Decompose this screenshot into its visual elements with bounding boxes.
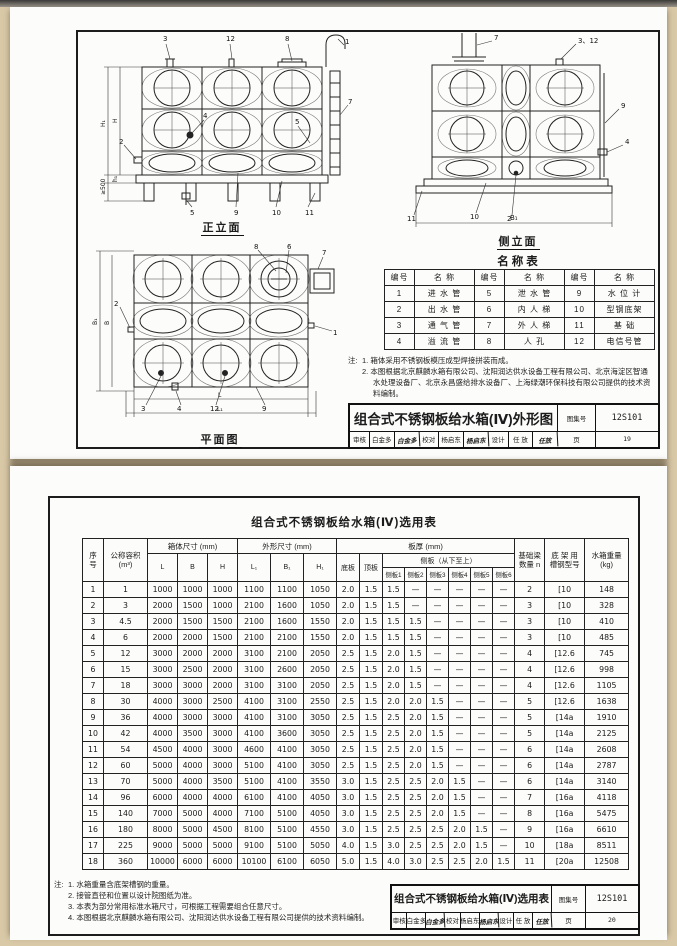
table-cell: 11 [83, 742, 104, 758]
table-cell: 3550 [304, 774, 337, 790]
table-cell: 6000 [208, 854, 238, 870]
table-cell: 1.5 [471, 838, 493, 854]
table-cell: 10000 [148, 854, 178, 870]
table-cell: 96 [104, 790, 148, 806]
table-cell: 2.0 [383, 678, 405, 694]
table-cell: 1100 [238, 582, 271, 598]
table-cell: 1105 [585, 678, 629, 694]
table-cell: 2.5 [405, 806, 427, 822]
callout-label: 7 [494, 34, 498, 42]
notes-label: 注: [348, 356, 362, 400]
col-header-channel: 底 架 用 槽钢型号 [545, 539, 585, 582]
table-cell: 1.5 [405, 646, 427, 662]
table-cell: 9 [565, 286, 595, 302]
table-cell: 1.5 [360, 774, 383, 790]
selection-table-row: 18360100006000600010100610060505.01.54.0… [83, 854, 629, 870]
table-cell: — [449, 678, 471, 694]
table-cell: — [493, 742, 515, 758]
table-cell: 2.5 [383, 742, 405, 758]
table-cell: 998 [585, 662, 629, 678]
title-block-row-signatures: 审核 白金多 白金多 校对 杨启东 杨启东 设计 任 放 任放 页 20 [392, 913, 638, 928]
table-cell: 2050 [304, 646, 337, 662]
table-cell: 3000 [178, 710, 208, 726]
table-cell: 4100 [271, 774, 304, 790]
table-cell: — [493, 838, 515, 854]
reviewer-signature: 白金多 [426, 912, 446, 928]
table-cell: — [405, 598, 427, 614]
table-cell: [10 [545, 598, 585, 614]
table-cell: [14a [545, 774, 585, 790]
table-cell: 5100 [271, 822, 304, 838]
table-cell: 2.5 [337, 694, 360, 710]
table-cell: 5 [475, 286, 505, 302]
table-cell: — [449, 694, 471, 710]
table-cell: 1050 [304, 582, 337, 598]
table-cell: 12 [83, 758, 104, 774]
table-cell: 1.5 [360, 598, 383, 614]
callout-label: 6 [287, 243, 292, 251]
col-header-side2: 侧板2 [405, 568, 427, 582]
sheet-title: 组合式不锈钢板给水箱(Ⅳ)外形图 [350, 405, 558, 431]
table-cell: 2050 [304, 662, 337, 678]
table-cell: 5100 [271, 838, 304, 854]
selection-table-row: 5123000200020003100210020502.51.52.01.5—… [83, 646, 629, 662]
table-cell: 1.5 [449, 774, 471, 790]
table-cell: 4050 [304, 806, 337, 822]
table-cell: — [471, 742, 493, 758]
table-cell: 2125 [585, 726, 629, 742]
table-cell: 3000 [208, 710, 238, 726]
table-cell: — [471, 662, 493, 678]
table-cell: 3140 [585, 774, 629, 790]
table-cell: 2608 [585, 742, 629, 758]
selection-table-row: 7183000300020003100310020502.51.52.01.5—… [83, 678, 629, 694]
table-cell: 4600 [238, 742, 271, 758]
col-header-side3: 侧板3 [427, 568, 449, 582]
table-cell: 6100 [271, 854, 304, 870]
table-cell: 4000 [178, 790, 208, 806]
col-header-volume: 公称容积 (m³) [104, 539, 148, 582]
table-cell: 6050 [304, 854, 337, 870]
dimension-label: L [218, 392, 222, 399]
table-cell: 2.0 [427, 790, 449, 806]
table-cell: — [493, 614, 515, 630]
table-cell: 360 [104, 854, 148, 870]
table-cell: 1.5 [360, 614, 383, 630]
table-cell: 1.5 [427, 742, 449, 758]
notes-list: 1. 水箱重量含底架槽钢的重量。2. 接管直径和位置以设计院图纸为准。3. 本表… [68, 880, 394, 924]
table-cell: — [493, 598, 515, 614]
table-cell: 3000 [178, 694, 208, 710]
table-cell: 2100 [238, 598, 271, 614]
dimension-label: B₁ [510, 214, 518, 222]
callout-label: 2 [119, 138, 123, 146]
table-cell: — [427, 614, 449, 630]
table-cell: 3.0 [337, 822, 360, 838]
table-cell: — [471, 598, 493, 614]
selection-table-body: 111000100010001100110010502.01.51.5—————… [83, 582, 629, 870]
table-cell: — [471, 678, 493, 694]
table-cell: 型钢底架 [595, 302, 655, 318]
callout-label: 7 [322, 249, 326, 257]
selection-table-title: 组合式不锈钢板给水箱(Ⅳ)选用表 [48, 514, 640, 530]
table-cell: 30 [104, 694, 148, 710]
table-cell: 2.5 [427, 838, 449, 854]
col-header: 编号 [385, 270, 415, 286]
table-cell: 1.5 [427, 710, 449, 726]
table-cell: — [471, 614, 493, 630]
selection-table-row: 34.52000150015002100160015502.01.51.51.5… [83, 614, 629, 630]
table-cell: 1.5 [427, 694, 449, 710]
table-cell: 225 [104, 838, 148, 854]
table-cell: — [493, 790, 515, 806]
col-header-side-plates: 侧板（从下至上） [383, 554, 515, 568]
callout-label: 9 [234, 209, 238, 217]
table-cell: 2.0 [383, 646, 405, 662]
table-cell: 2550 [304, 694, 337, 710]
table-cell: 3.0 [337, 806, 360, 822]
table-cell: 1600 [271, 614, 304, 630]
notes-block: 注: 1. 箱体采用不锈钢板模压成型焊接拼装而成。2. 本图根据北京麒麟水箱有限… [348, 356, 654, 400]
table-cell: 4500 [148, 742, 178, 758]
table-cell: 1.5 [383, 614, 405, 630]
table-cell: 1.5 [360, 854, 383, 870]
table-cell: 1.5 [360, 662, 383, 678]
table-cell: 2050 [304, 678, 337, 694]
volume-unit: (m³) [104, 560, 147, 569]
table-cell: 5000 [178, 822, 208, 838]
seq-label-top: 序 [83, 551, 103, 560]
col-header-B1: B₁ [271, 554, 304, 582]
table-cell: — [471, 630, 493, 646]
table-cell: 10 [515, 838, 545, 854]
note-line: 1. 水箱重量含底架槽钢的重量。 [68, 880, 394, 891]
callout-label: 10 [470, 213, 479, 221]
table-cell: 2.5 [383, 790, 405, 806]
table-cell: 3000 [148, 678, 178, 694]
note-line: 2. 本图根据北京麒麟水箱有限公司、沈阳润达供水设备工程有限公司、北京海淀区智通… [362, 367, 654, 400]
table-cell: 5100 [238, 758, 271, 774]
table-cell: — [493, 726, 515, 742]
check-label: 校对 [419, 432, 439, 447]
design-label: 设计 [489, 432, 509, 447]
check-label: 校对 [445, 913, 460, 928]
table-cell: 4100 [238, 726, 271, 742]
table-cell: [16a [545, 822, 585, 838]
table-cell: 2.5 [427, 854, 449, 870]
table-cell: 1.5 [449, 790, 471, 806]
table-cell: 基 础 [595, 318, 655, 334]
page-20-selection-table: 组合式不锈钢板给水箱(Ⅳ)选用表 序 号 公称容积 [10, 466, 667, 940]
table-cell: 12508 [585, 854, 629, 870]
table-cell: — [493, 582, 515, 598]
table-cell: 4000 [148, 710, 178, 726]
table-cell: 1.5 [471, 822, 493, 838]
table-cell: 60 [104, 758, 148, 774]
table-cell: 4000 [208, 790, 238, 806]
table-cell: 通 气 管 [415, 318, 475, 334]
table-cell: 11 [565, 318, 595, 334]
page-number: 19 [596, 432, 658, 447]
callout-label: 9 [621, 102, 625, 110]
table-cell: 1550 [304, 630, 337, 646]
table-cell: 6000 [178, 854, 208, 870]
table-cell: 18 [83, 854, 104, 870]
name-table-header-row: 编号 名 称 编号 名 称 编号 名 称 [385, 270, 655, 286]
table-cell: [10 [545, 614, 585, 630]
table-cell: 1.5 [405, 662, 427, 678]
col-header-H: H [208, 554, 238, 582]
table-cell: 1.5 [449, 806, 471, 822]
table-cell: 2.0 [405, 758, 427, 774]
table-cell: 进 水 管 [415, 286, 475, 302]
table-cell: 1.5 [360, 646, 383, 662]
dimension-label: L₁ [217, 406, 223, 413]
table-cell: 7 [83, 678, 104, 694]
table-cell: 1.5 [360, 758, 383, 774]
table-cell: 3100 [271, 710, 304, 726]
table-cell: — [449, 726, 471, 742]
table-cell: 17 [83, 838, 104, 854]
table-cell: 10 [83, 726, 104, 742]
table-cell: — [427, 630, 449, 646]
table-cell: — [493, 822, 515, 838]
table-cell: 328 [585, 598, 629, 614]
col-header-side5: 侧板5 [471, 568, 493, 582]
callout-label: 3 [141, 405, 145, 413]
table-cell: 2.5 [337, 646, 360, 662]
table-cell: 2.0 [449, 838, 471, 854]
table-cell: — [449, 630, 471, 646]
col-header-outer-dims: 外形尺寸 (mm) [238, 539, 337, 554]
note-line: 3. 本表为部分常用标准水箱尺寸，可根据工程需要组合任意尺寸。 [68, 902, 394, 913]
table-cell: 12 [104, 646, 148, 662]
atlas-no-label: 图集号 [558, 405, 596, 431]
table-cell: 2.5 [427, 822, 449, 838]
table-cell: 5 [83, 646, 104, 662]
table-cell: 3050 [304, 742, 337, 758]
table-cell: — [449, 742, 471, 758]
table-cell: 4 [515, 678, 545, 694]
table-cell: 54 [104, 742, 148, 758]
table-cell: 3.0 [405, 854, 427, 870]
table-cell: — [449, 614, 471, 630]
table-cell: 4000 [178, 742, 208, 758]
table-cell: 1000 [178, 582, 208, 598]
table-cell: 出 水 管 [415, 302, 475, 318]
reviewer-name: 白金多 [370, 432, 395, 447]
table-cell: 6 [104, 630, 148, 646]
table-cell: [16a [545, 790, 585, 806]
seq-label-bottom: 号 [83, 560, 103, 569]
selection-table-row: 13705000400035005100410035503.01.52.52.5… [83, 774, 629, 790]
table-cell: 人 孔 [505, 334, 565, 350]
table-cell: 1050 [304, 598, 337, 614]
table-cell: 4 [385, 334, 415, 350]
table-cell: — [471, 582, 493, 598]
table-cell: 1638 [585, 694, 629, 710]
table-cell: [12.6 [545, 662, 585, 678]
table-cell: — [471, 806, 493, 822]
dimension-label: h₁ [112, 175, 119, 182]
beam-unit: 数量 n [515, 560, 544, 569]
scan-shadow [0, 0, 677, 7]
table-cell: 5000 [148, 774, 178, 790]
table-cell: — [427, 598, 449, 614]
table-cell: — [471, 710, 493, 726]
table-cell: — [471, 758, 493, 774]
table-cell: 2.0 [405, 694, 427, 710]
selection-table-row: 14966000400040006100410040503.01.52.52.5… [83, 790, 629, 806]
selection-table-header-row: 序 号 公称容积 (m³) 箱体尺寸 (mm) 外形尺寸 (mm) 板厚 (mm… [83, 539, 629, 554]
table-cell: — [427, 662, 449, 678]
table-cell: 2.5 [383, 774, 405, 790]
table-cell: 2100 [238, 630, 271, 646]
table-cell: 1500 [178, 614, 208, 630]
note-line: 4. 本图根据北京麒麟水箱有限公司、沈阳润达供水设备工程有限公司提供的技术资料编… [68, 913, 394, 924]
table-cell: 4.0 [337, 838, 360, 854]
callout-label: 4 [625, 138, 630, 146]
callout-label: 1 [345, 38, 349, 46]
selection-table-row: 11544500400030004600410030502.51.52.52.0… [83, 742, 629, 758]
notes-label: 注: [54, 880, 68, 924]
table-cell: — [471, 774, 493, 790]
weight-unit: (kg) [585, 560, 628, 569]
callout-label: 1 [333, 329, 337, 337]
selection-table-row: 172259000500050009100510050504.01.53.02.… [83, 838, 629, 854]
table-cell: 2.0 [427, 774, 449, 790]
col-header: 编号 [475, 270, 505, 286]
table-cell: — [449, 662, 471, 678]
review-label: 审核 [392, 913, 407, 928]
table-cell: 4 [515, 646, 545, 662]
atlas-no-value: 12S101 [596, 405, 658, 431]
table-cell: [20a [545, 854, 585, 870]
table-cell: 2000 [178, 646, 208, 662]
table-cell: 4118 [585, 790, 629, 806]
table-cell: 2000 [208, 646, 238, 662]
table-cell: — [427, 646, 449, 662]
title-block: 组合式不锈钢板给水箱(Ⅳ)选用表 图集号 12S101 审核 白金多 白金多 校… [390, 884, 640, 930]
table-cell: 3000 [148, 646, 178, 662]
table-cell: 3100 [271, 678, 304, 694]
selection-table-row: 232000150010002100160010502.01.51.5—————… [83, 598, 629, 614]
volume-label: 公称容积 [104, 551, 147, 560]
table-cell: 3600 [271, 726, 304, 742]
selection-table-row: 462000200015002100210015502.01.51.51.5——… [83, 630, 629, 646]
page-19-outline-drawing: 3 12 8 1 7 2 4 5 5 9 10 11 H₁ [10, 7, 667, 459]
table-cell: 3 [515, 614, 545, 630]
channel-label-2: 槽钢型号 [545, 560, 584, 569]
table-cell: 1.5 [360, 838, 383, 854]
table-cell: — [427, 678, 449, 694]
channel-label-1: 底 架 用 [545, 551, 584, 560]
table-cell: 2.5 [405, 838, 427, 854]
table-cell: 1 [104, 582, 148, 598]
table-cell: 4550 [304, 822, 337, 838]
table-cell: 2.5 [337, 678, 360, 694]
selection-table-row: 6153000250020003100260020502.51.52.01.5—… [83, 662, 629, 678]
col-header-weight: 水箱重量 (kg) [585, 539, 629, 582]
table-cell: 5100 [271, 806, 304, 822]
table-cell: 2.5 [383, 710, 405, 726]
callout-label: 11 [305, 209, 314, 217]
col-header-seq: 序 号 [83, 539, 104, 582]
table-cell: 2.0 [337, 582, 360, 598]
front-elevation-drawing: 3 12 8 1 7 2 4 5 5 9 10 11 H₁ [86, 31, 358, 219]
checker-signature: 杨启东 [464, 431, 489, 447]
notes-block: 注: 1. 水箱重量含底架槽钢的重量。2. 接管直径和位置以设计院图纸为准。3.… [54, 880, 394, 924]
table-cell: 3.0 [337, 790, 360, 806]
title-block-row-main: 组合式不锈钢板给水箱(Ⅳ)外形图 图集号 12S101 [350, 405, 658, 432]
table-cell: [14a [545, 742, 585, 758]
table-cell: 1.5 [383, 582, 405, 598]
sheet-title: 组合式不锈钢板给水箱(Ⅳ)选用表 [392, 886, 552, 912]
table-cell: 3100 [238, 646, 271, 662]
table-cell: 1.5 [427, 758, 449, 774]
col-header: 名 称 [595, 270, 655, 286]
col-header-L: L [148, 554, 178, 582]
table-cell: 1500 [178, 598, 208, 614]
table-cell: 1600 [271, 598, 304, 614]
table-cell: 2.0 [405, 726, 427, 742]
table-cell: 9000 [148, 838, 178, 854]
title-block: 组合式不锈钢板给水箱(Ⅳ)外形图 图集号 12S101 审核 白金多 白金多 校… [348, 403, 660, 449]
table-cell: 泄 水 管 [505, 286, 565, 302]
table-cell: [14a [545, 758, 585, 774]
table-cell: 3 [83, 614, 104, 630]
beam-label: 基础梁 [515, 551, 544, 560]
table-cell: 5000 [148, 758, 178, 774]
callout-label: 10 [272, 209, 281, 217]
dimension-label: B₁ [92, 318, 99, 325]
col-header: 编号 [565, 270, 595, 286]
table-cell: 2787 [585, 758, 629, 774]
table-cell: 7 [515, 790, 545, 806]
table-cell: 1910 [585, 710, 629, 726]
callout-label: 12 [226, 35, 235, 43]
callout-label: 5 [190, 209, 194, 217]
design-label: 设计 [499, 913, 514, 928]
name-table-title: 名称表 [384, 253, 654, 269]
note-line: 1. 箱体采用不锈钢板模压成型焊接拼装而成。 [362, 356, 654, 367]
table-cell: 148 [585, 582, 629, 598]
table-cell: 6 [83, 662, 104, 678]
table-cell: 6610 [585, 822, 629, 838]
table-cell: 1500 [208, 630, 238, 646]
table-cell: 2.5 [337, 758, 360, 774]
table-cell: 1 [83, 582, 104, 598]
table-cell: 3.0 [337, 774, 360, 790]
table-cell: 2100 [271, 646, 304, 662]
table-cell: 3000 [178, 678, 208, 694]
table-cell: 13 [83, 774, 104, 790]
table-cell: 4100 [271, 758, 304, 774]
table-cell: 1.5 [360, 790, 383, 806]
table-cell: — [493, 806, 515, 822]
table-cell: 12 [565, 334, 595, 350]
table-cell: 1.5 [427, 726, 449, 742]
table-cell: 2.5 [383, 726, 405, 742]
checker-name: 杨启东 [461, 913, 480, 928]
callout-label: 8 [254, 243, 258, 251]
selection-table-row: 8304000300025004100310025502.51.52.02.01… [83, 694, 629, 710]
table-cell: — [493, 662, 515, 678]
table-cell: 15 [83, 806, 104, 822]
table-cell: 2.0 [405, 742, 427, 758]
callout-label: 3 [163, 35, 167, 43]
table-cell: 1.5 [360, 678, 383, 694]
